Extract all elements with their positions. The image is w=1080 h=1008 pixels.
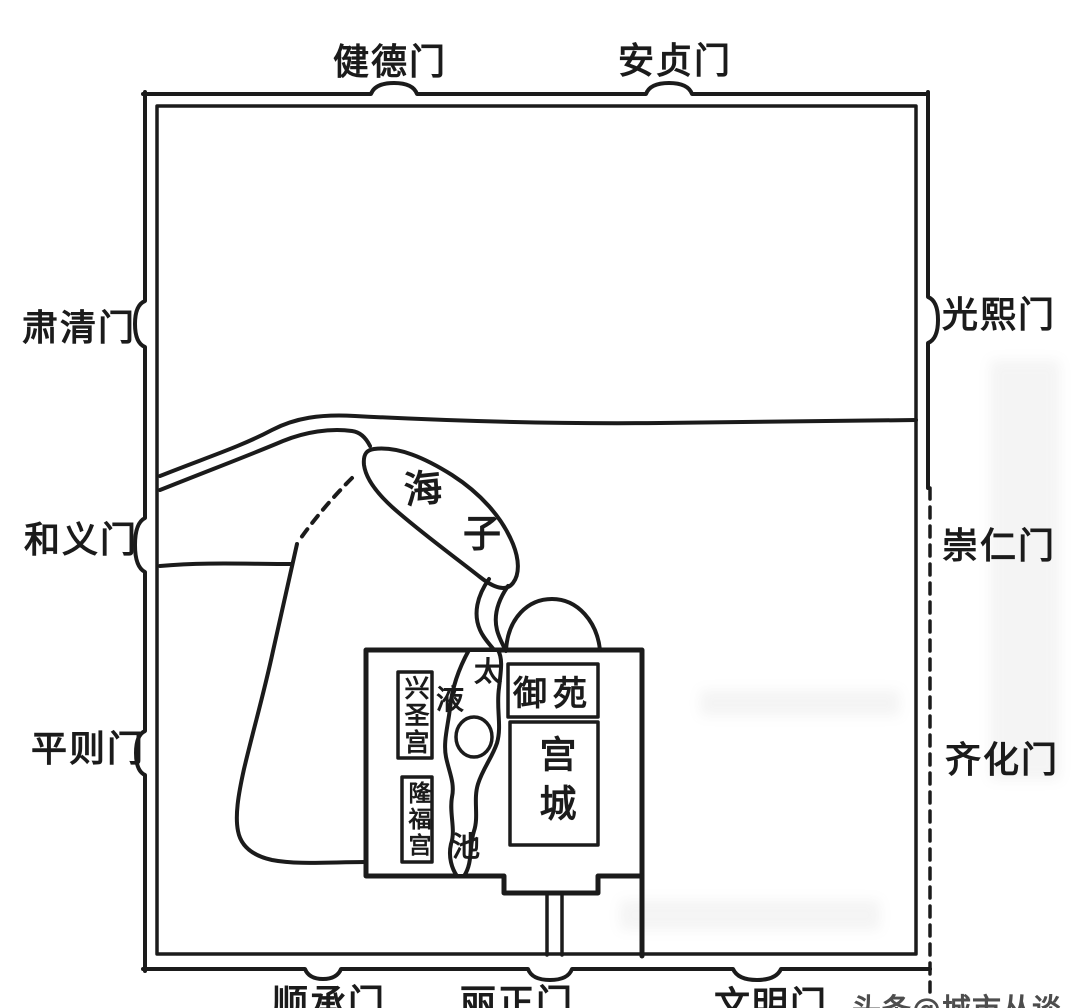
gongcheng-label: 宫城 <box>510 722 598 845</box>
haizi-lake-label-char1: 海 <box>402 468 444 510</box>
gate-label-anzhenmen: 安贞门 <box>618 44 732 80</box>
haizi-lake-label-char2: 子 <box>463 515 501 553</box>
longfugong-text: 隆福宫 <box>400 781 434 859</box>
watermark-text: 头条@城市丛谈 <box>852 986 1062 1008</box>
taiye-pond-label-char2: 液 <box>436 686 464 714</box>
stream-left-bank <box>477 579 496 652</box>
xingshenggong-label: 兴圣宫 <box>398 672 432 758</box>
gate-label-wenmingmen: 文明门 <box>714 988 828 1008</box>
outer-wall-right <box>928 92 938 488</box>
imperial-way <box>547 893 562 955</box>
gate-label-shunchengmen: 顺承门 <box>272 986 386 1008</box>
gate-label-lizhengmen: 丽正门 <box>460 986 574 1008</box>
river-south-bank <box>160 430 370 490</box>
pond-island <box>456 717 492 757</box>
yuyuan-label: 御苑 <box>508 664 598 717</box>
gate-label-jiandemen: 健德门 <box>333 45 447 81</box>
gate-label-qihuamen: 齐化门 <box>945 743 1059 779</box>
gate-label-guangximen: 光熙门 <box>942 298 1056 334</box>
western-channel <box>237 544 366 863</box>
gate-label-heyimen: 和义门 <box>24 523 138 559</box>
yuyuan-text: 御苑 <box>513 666 593 715</box>
outer-wall-bottom <box>143 969 930 980</box>
taiye-pond-label-char3: 池 <box>452 833 480 861</box>
heyi-gate-road <box>160 564 292 567</box>
longfugong-label: 隆福宫 <box>402 777 432 862</box>
yuan-dadu-city-plan: 健德门 安贞门 肃清门 和义门 平则门 光熙门 崇仁门 齐化门 顺承门 丽正门 … <box>0 0 1080 1008</box>
hill-mound <box>506 599 600 650</box>
gate-label-suqingmen: 肃清门 <box>22 311 136 347</box>
xingshenggong-text: 兴圣宫 <box>397 675 433 756</box>
city-map-drawing <box>0 0 1080 1008</box>
taiye-pond-label-char1: 太 <box>474 658 502 686</box>
gate-label-pingzemen: 平则门 <box>31 732 145 768</box>
gate-label-chongrenmen: 崇仁门 <box>942 529 1056 565</box>
outer-wall-top <box>143 83 928 94</box>
gongcheng-text: 宫城 <box>527 735 581 833</box>
dashed-creek <box>298 478 352 542</box>
